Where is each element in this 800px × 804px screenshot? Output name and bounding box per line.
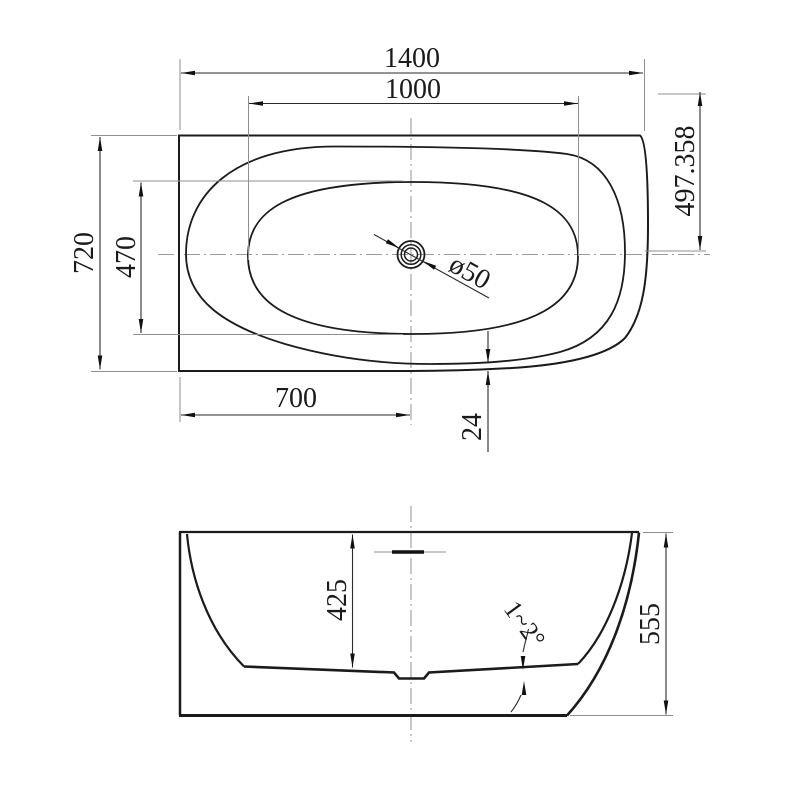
dim-label-1400: 1400 (384, 43, 440, 74)
dim-label-555: 555 (635, 603, 666, 645)
tub-rim-inner-edge (186, 147, 625, 365)
dim-basin-length: 1000 (249, 74, 579, 260)
drawing-sheet: 1400 1000 720 470 (0, 0, 800, 804)
dim-label-720: 720 (69, 232, 100, 274)
plan-view: 1400 1000 720 470 (69, 43, 710, 452)
dim-rim-gap: 24 (457, 331, 490, 452)
tub-basin-edge (248, 182, 578, 334)
elevation-left-wall-inner (187, 534, 244, 667)
dim-drain-diameter: ø50 (374, 235, 496, 299)
dim-floor-slope: 1~2° (498, 595, 551, 712)
dim-corner-offset: 497.358 (645, 92, 706, 251)
dim-label-24: 24 (457, 413, 488, 441)
cad-drawing-canvas: 1400 1000 720 470 (0, 0, 800, 804)
dim-basin-width: 470 (111, 181, 403, 335)
elevation-right-wall-inner (578, 533, 632, 664)
dim-overall-height: 555 (570, 533, 673, 716)
elevation-view: 425 555 1~2° (179, 506, 673, 742)
dim-label-470: 470 (111, 236, 142, 278)
dim-label-700: 700 (275, 383, 317, 414)
dim-label-1000: 1000 (385, 74, 441, 105)
dim-label-drain-diameter: ø50 (444, 249, 496, 296)
dim-drain-offset: 700 (180, 377, 410, 422)
dim-label-497: 497.358 (670, 126, 701, 217)
dim-label-425: 425 (322, 579, 353, 621)
dim-inner-depth: 425 (322, 535, 355, 668)
dim-label-slope: 1~2° (498, 595, 551, 653)
